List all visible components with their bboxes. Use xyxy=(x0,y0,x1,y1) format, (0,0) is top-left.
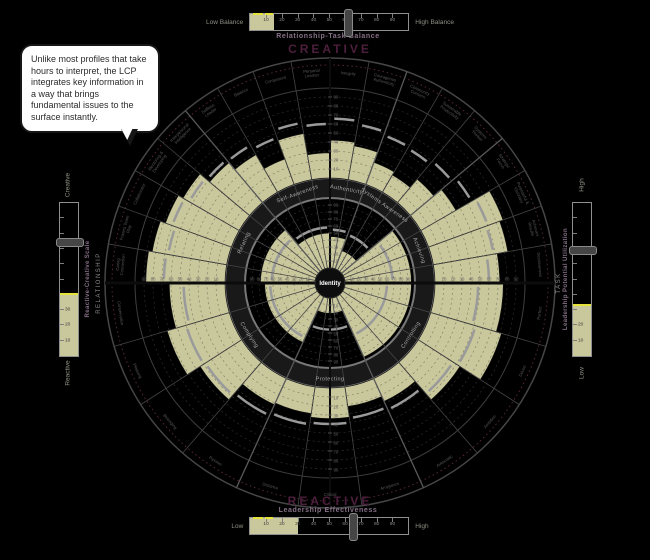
svg-text:50: 50 xyxy=(334,231,339,236)
gauge-tick xyxy=(573,340,577,341)
svg-text:50: 50 xyxy=(178,277,183,282)
gauge-tick-number: 90 xyxy=(390,522,395,527)
gauge-tick-number: 60 xyxy=(342,522,347,527)
right-gauge-title: Leadership Potential Utilization xyxy=(563,228,569,330)
gauge-tick xyxy=(573,233,577,234)
svg-text:30: 30 xyxy=(460,277,465,282)
svg-text:80: 80 xyxy=(151,277,156,282)
gauge-slider[interactable] xyxy=(344,9,353,37)
svg-text:20: 20 xyxy=(334,311,339,316)
svg-text:90: 90 xyxy=(334,360,339,365)
svg-text:10: 10 xyxy=(442,277,447,282)
gauge-tick-number: 90 xyxy=(390,18,395,23)
gauge-tick xyxy=(60,309,64,310)
svg-text:90: 90 xyxy=(334,468,339,473)
gauge-tick xyxy=(60,324,64,325)
svg-text:40: 40 xyxy=(371,277,376,282)
gauge-tick-number: 40 xyxy=(311,522,316,527)
left-gauge-bar: 102030 xyxy=(59,202,79,357)
gauge-tick-number: 50 xyxy=(327,522,332,527)
gauge-tick-number: 20 xyxy=(279,522,284,527)
gauge-fill xyxy=(250,14,274,30)
svg-text:90: 90 xyxy=(334,203,339,208)
svg-text:90: 90 xyxy=(334,95,339,100)
callout-bubble: Unlike most profiles that take hours to … xyxy=(20,44,160,133)
right-gauge-min-label: Low xyxy=(579,367,586,379)
svg-text:30: 30 xyxy=(292,277,297,282)
reactive-creative-scale-gauge: 102030 xyxy=(59,202,79,357)
svg-text:60: 60 xyxy=(487,277,492,282)
gauge-tick-number: 10 xyxy=(263,522,268,527)
svg-text:50: 50 xyxy=(334,432,339,437)
svg-text:70: 70 xyxy=(392,277,397,282)
gauge-tick xyxy=(60,263,64,264)
gauge-tick-number: 10 xyxy=(263,18,268,23)
right-gauge-bar: 1020 xyxy=(572,202,592,357)
svg-text:50: 50 xyxy=(478,277,483,282)
gauge-tick-number: 10 xyxy=(65,338,70,343)
svg-text:20: 20 xyxy=(205,277,210,282)
yellow-mark xyxy=(253,13,262,15)
svg-text:10: 10 xyxy=(334,259,339,264)
left-gauge-title: Reactive-Creative Scale xyxy=(85,241,91,318)
svg-text:60: 60 xyxy=(271,277,276,282)
svg-text:90: 90 xyxy=(406,277,411,282)
svg-text:PersonalLearner: PersonalLearner xyxy=(303,68,320,79)
svg-text:40: 40 xyxy=(334,325,339,330)
gauge-tick-number: 20 xyxy=(578,323,583,328)
svg-text:70: 70 xyxy=(160,277,165,282)
gauge-tick xyxy=(60,233,64,234)
bottom-gauge-title: Leadership Effectiveness xyxy=(249,507,407,514)
top-gauge-bar: 102030405060708090 xyxy=(249,13,409,31)
svg-text:60: 60 xyxy=(169,277,174,282)
svg-text:40: 40 xyxy=(334,140,339,145)
svg-text:20: 20 xyxy=(334,158,339,163)
creative-heading: CREATIVE xyxy=(230,42,430,56)
gauge-tick xyxy=(60,248,64,249)
left-gauge-max-label: Creative xyxy=(65,173,72,197)
gauge-fill xyxy=(250,518,297,534)
yellow-mark xyxy=(265,13,273,15)
relationship-task-balance-gauge: Low Balance 102030405060708090 High Bala… xyxy=(150,13,510,31)
gauge-slider[interactable] xyxy=(569,246,597,255)
svg-text:90: 90 xyxy=(142,277,147,282)
svg-text:40: 40 xyxy=(334,238,339,243)
svg-text:30: 30 xyxy=(364,277,369,282)
svg-text:90: 90 xyxy=(514,277,519,282)
gauge-tick xyxy=(60,279,64,280)
svg-text:60: 60 xyxy=(334,224,339,229)
right-gauge-max-label: High xyxy=(579,178,586,191)
callout-text: Unlike most profiles that take hours to … xyxy=(31,54,149,123)
gauge-tick xyxy=(573,263,577,264)
svg-text:20: 20 xyxy=(334,405,339,410)
yellow-mark xyxy=(253,517,262,519)
svg-text:70: 70 xyxy=(334,217,339,222)
yellow-mark xyxy=(573,304,591,306)
gauge-slider[interactable] xyxy=(56,238,84,247)
gauge-tick-number: 30 xyxy=(295,18,300,23)
svg-text:40: 40 xyxy=(334,423,339,428)
svg-text:70: 70 xyxy=(334,450,339,455)
svg-text:40: 40 xyxy=(285,277,290,282)
svg-text:10: 10 xyxy=(334,396,339,401)
svg-text:50: 50 xyxy=(334,131,339,136)
svg-text:30: 30 xyxy=(334,245,339,250)
gauge-tick xyxy=(573,309,577,310)
gauge-tick-number: 70 xyxy=(358,18,363,23)
svg-text:50: 50 xyxy=(378,277,383,282)
svg-text:10: 10 xyxy=(214,277,219,282)
svg-text:60: 60 xyxy=(385,277,390,282)
svg-text:10: 10 xyxy=(306,277,311,282)
svg-text:30: 30 xyxy=(334,149,339,154)
svg-text:80: 80 xyxy=(334,210,339,215)
gauge-tick xyxy=(573,294,577,295)
svg-text:10: 10 xyxy=(334,304,339,309)
gauge-fill xyxy=(573,306,591,356)
gauge-slider[interactable] xyxy=(349,513,358,541)
svg-text:40: 40 xyxy=(187,277,192,282)
gauge-tick-number: 40 xyxy=(311,18,316,23)
gauge-tick-number: 70 xyxy=(358,522,363,527)
gauge-tick-number: 30 xyxy=(295,522,300,527)
svg-text:30: 30 xyxy=(334,414,339,419)
svg-text:60: 60 xyxy=(334,441,339,446)
svg-text:70: 70 xyxy=(334,346,339,351)
svg-text:20: 20 xyxy=(334,252,339,257)
svg-text:60: 60 xyxy=(334,122,339,127)
svg-text:20: 20 xyxy=(451,277,456,282)
svg-text:60: 60 xyxy=(334,339,339,344)
svg-text:80: 80 xyxy=(505,277,510,282)
gauge-tick-number: 80 xyxy=(374,522,379,527)
leadership-potential-utilization-gauge: 1020 xyxy=(572,202,592,357)
gauge-tick xyxy=(60,217,64,218)
gauge-tick-number: 80 xyxy=(374,18,379,23)
task-axis-label: TASK xyxy=(556,272,562,293)
svg-text:90: 90 xyxy=(250,277,255,282)
bottom-gauge-max-label: High xyxy=(415,523,428,530)
svg-text:50: 50 xyxy=(334,332,339,337)
relationship-axis-label: RELATIONSHIP xyxy=(96,252,102,314)
gauge-tick xyxy=(573,324,577,325)
svg-text:50: 50 xyxy=(278,277,283,282)
svg-text:30: 30 xyxy=(196,277,201,282)
yellow-mark xyxy=(265,517,273,519)
svg-text:80: 80 xyxy=(257,277,262,282)
svg-text:20: 20 xyxy=(357,277,362,282)
svg-text:80: 80 xyxy=(334,459,339,464)
svg-text:80: 80 xyxy=(334,353,339,358)
gauge-tick xyxy=(60,340,64,341)
gauge-tick-number: 20 xyxy=(279,18,284,23)
svg-text:70: 70 xyxy=(264,277,269,282)
svg-text:30: 30 xyxy=(334,318,339,323)
svg-text:70: 70 xyxy=(334,113,339,118)
gauge-tick-number: 10 xyxy=(578,338,583,343)
gauge-tick xyxy=(573,217,577,218)
svg-text:10: 10 xyxy=(334,167,339,172)
top-gauge-max-label: High Balance xyxy=(415,19,454,26)
yellow-mark xyxy=(60,293,78,295)
leadership-effectiveness-gauge: Low 102030405060708090 High xyxy=(150,517,510,535)
svg-text:40: 40 xyxy=(469,277,474,282)
svg-text:20: 20 xyxy=(299,277,304,282)
svg-text:Protecting: Protecting xyxy=(316,377,345,383)
bottom-gauge-min-label: Low xyxy=(231,523,243,530)
gauge-tick xyxy=(573,279,577,280)
svg-text:10: 10 xyxy=(350,277,355,282)
top-gauge-title: Relationship-Task Balance xyxy=(249,33,407,40)
svg-text:80: 80 xyxy=(399,277,404,282)
svg-text:80: 80 xyxy=(334,104,339,109)
svg-text:Identity: Identity xyxy=(319,281,341,287)
gauge-tick-number: 20 xyxy=(65,323,70,328)
top-gauge-min-label: Low Balance xyxy=(206,19,243,26)
left-gauge-min-label: Reactive xyxy=(65,360,72,385)
gauge-tick-number: 30 xyxy=(65,308,70,313)
svg-text:70: 70 xyxy=(496,277,501,282)
reactive-heading: REACTIVE xyxy=(230,494,430,508)
gauge-tick-number: 50 xyxy=(327,18,332,23)
bottom-gauge-bar: 102030405060708090 xyxy=(249,517,409,535)
